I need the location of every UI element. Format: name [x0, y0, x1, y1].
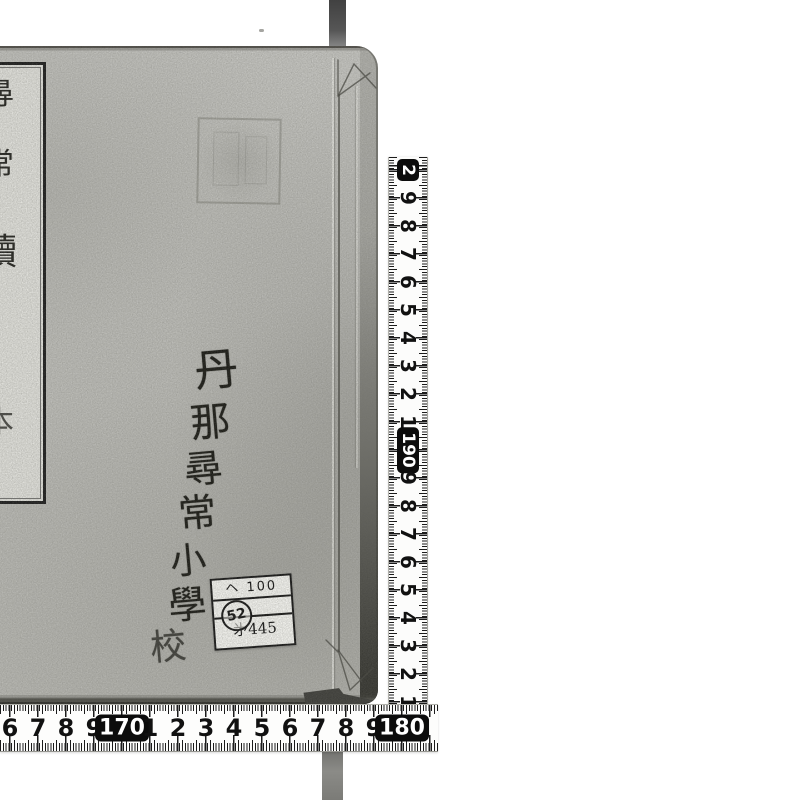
ruler-number: 4 [396, 331, 420, 345]
handwritten-char: 常 [176, 480, 219, 538]
hanging-strap-bottom [322, 748, 343, 800]
vertical-ruler-numbers: 2987654321190987654321 [389, 157, 427, 749]
ruler-number: 5 [396, 303, 420, 317]
ruler-number: 8 [58, 714, 75, 742]
ruler-number: 2 [396, 667, 420, 681]
horizontal-ruler-numbers: 6789170123456789180 [0, 705, 438, 751]
ruler-number: 7 [30, 714, 47, 742]
ruler-number: 8 [396, 499, 420, 513]
ruler-number: 7 [396, 527, 420, 541]
spine-title-char: 讀 [0, 223, 19, 275]
ruler-number: 6 [282, 714, 299, 742]
binding-crease-2 [356, 86, 358, 468]
book-top-edge [0, 46, 378, 55]
binding-crease [332, 58, 334, 690]
ruler-number: 7 [396, 247, 420, 261]
handwritten-char: 校 [148, 617, 188, 672]
ruler-number: 2 [397, 159, 419, 181]
ruler-number: 7 [310, 714, 327, 742]
spine-title-char: 常 [0, 139, 19, 183]
ruler-number: 2 [396, 387, 420, 401]
spine-title-char: 本 [0, 397, 19, 441]
ruler-number: 8 [338, 714, 355, 742]
ruler-number: 1 [142, 714, 159, 742]
ruler-number: 6 [2, 714, 19, 742]
book-fore-edge-shadow [360, 46, 378, 704]
ruler-number: 5 [254, 714, 271, 742]
spine-title-slip: 尋常讀本 [0, 62, 46, 504]
ruler-number: 9 [396, 191, 420, 205]
ruler-number: 6 [396, 275, 420, 289]
ruler-number: 190 [397, 427, 419, 473]
binding-thread [338, 94, 340, 652]
ruler-number: 6 [396, 555, 420, 569]
vertical-ruler: 2987654321190987654321 [388, 157, 428, 749]
ruler-number: 2 [170, 714, 187, 742]
ruler-number: 3 [396, 359, 420, 373]
dust-speck [259, 29, 264, 32]
spine-title-char: 尋 [0, 69, 19, 113]
accession-label: ヘ 100 㐧445 52 [210, 573, 297, 651]
ruler-number: 8 [396, 219, 420, 233]
ruler-number: 4 [226, 714, 243, 742]
ruler-number: 180 [375, 715, 429, 742]
spine-title-text: 尋常讀本 [0, 65, 43, 501]
ruler-number: 3 [396, 639, 420, 653]
hanging-strap-top [329, 0, 346, 49]
ruler-number: 3 [198, 714, 215, 742]
ruler-number: 5 [396, 583, 420, 597]
horizontal-ruler: 6789170123456789180 [0, 704, 438, 752]
ruler-number: 9 [396, 471, 420, 485]
scanned-book-photo: 尋常讀本 丹那尋常小學校 ヘ 100 㐧445 52 [0, 0, 800, 800]
embossed-seal [196, 117, 281, 204]
ruler-number: 4 [396, 611, 420, 625]
